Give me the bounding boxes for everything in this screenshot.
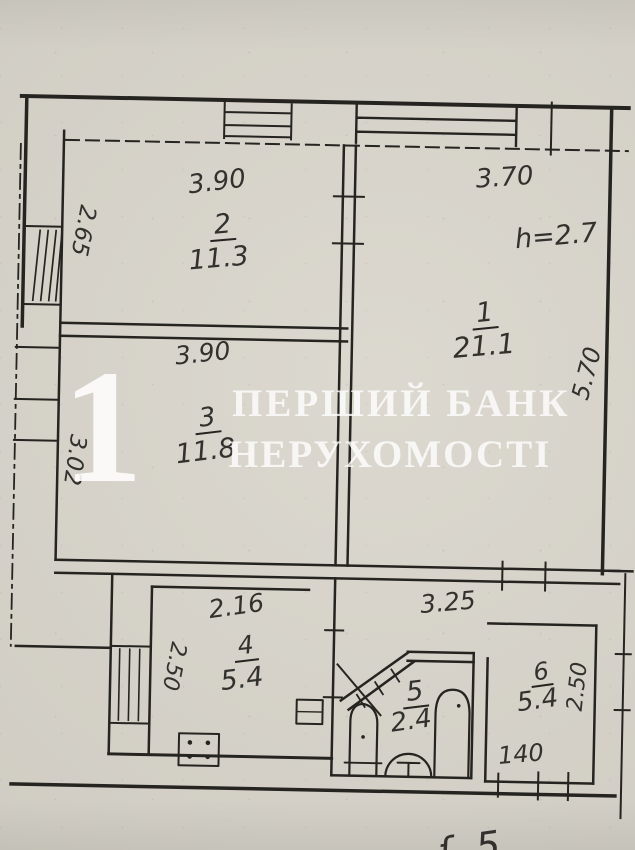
room6-area: 5.4 [515,683,560,718]
bathtub-icon [434,689,470,778]
room6-dim-right: 2.50 [563,661,593,712]
watermark-line1: ПЕРШИЙ БАНК [232,381,570,425]
room1-dim-right: 5.70 [566,344,607,403]
stove-icon [178,733,219,766]
watermark-line2: НЕРУХОМОСТІ [228,433,551,476]
kitchen-sink-icon [296,700,322,725]
dashed-wall-top [66,140,628,151]
room4-dim-left: 2.50 [157,640,191,693]
room4-area: 5.4 [219,661,265,697]
room4-dim-top: 2.16 [207,588,266,624]
room6-dim-bottom: 140 [497,738,545,770]
corridor-dim: 3.25 [419,585,477,619]
watermark: 1 ПЕРШИЙ БАНК НЕРУХОМОСТІ [62,338,570,517]
room6-number: 6 [532,657,551,687]
room2-dim-top: 3.90 [187,164,248,201]
room2-area: 11.3 [187,240,250,276]
room1-dim-top: 3.70 [475,161,535,195]
room1-height-note: h=2.7 [514,217,599,255]
room5-area: 2.4 [389,703,434,738]
room2-number: 2 [213,208,233,240]
bottom-note-fragment: ʄ. 5 [432,822,503,850]
wall-center [326,145,364,566]
scanned-floor-plan: 3.70 h=2.7 1 21.1 5.70 3.90 2 11.3 2.65 … [0,0,635,850]
room3-dim-top: 3.90 [174,336,232,371]
watermark-numeral: 1 [62,338,143,517]
toilet-icon [385,753,431,777]
washbasin-icon [344,704,382,777]
window-room2-icon [224,103,292,139]
room4-number: 4 [236,630,255,661]
floor-plan-drawing: 3.70 h=2.7 1 21.1 5.70 3.90 2 11.3 2.65 … [0,0,635,850]
room5-number: 5 [404,675,425,708]
room1-number: 1 [474,297,494,330]
wall-corridor [55,553,619,592]
room1-area: 21.1 [451,327,516,365]
room2-dim-left: 2.65 [65,203,100,258]
room3-number: 3 [197,402,217,434]
